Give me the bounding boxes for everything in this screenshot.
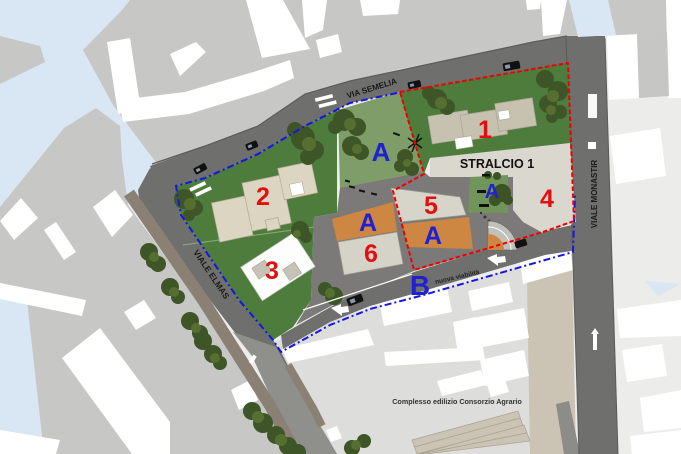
- svg-text:3: 3: [265, 257, 279, 285]
- svg-text:4: 4: [540, 185, 554, 213]
- svg-text:B: B: [410, 270, 430, 301]
- svg-text:5: 5: [424, 192, 438, 220]
- svg-text:6: 6: [364, 240, 378, 268]
- svg-text:A: A: [485, 181, 499, 203]
- svg-text:1: 1: [478, 116, 492, 144]
- svg-text:VIALE MONASTIR: VIALE MONASTIR: [590, 160, 599, 229]
- svg-text:A: A: [359, 209, 377, 237]
- svg-text:Complesso edilizio Consorzio A: Complesso edilizio Consorzio Agrario: [392, 397, 522, 406]
- svg-text:A: A: [372, 137, 391, 167]
- svg-text:2: 2: [256, 183, 270, 211]
- svg-text:A: A: [424, 222, 442, 250]
- svg-text:STRALCIO 1: STRALCIO 1: [460, 157, 534, 171]
